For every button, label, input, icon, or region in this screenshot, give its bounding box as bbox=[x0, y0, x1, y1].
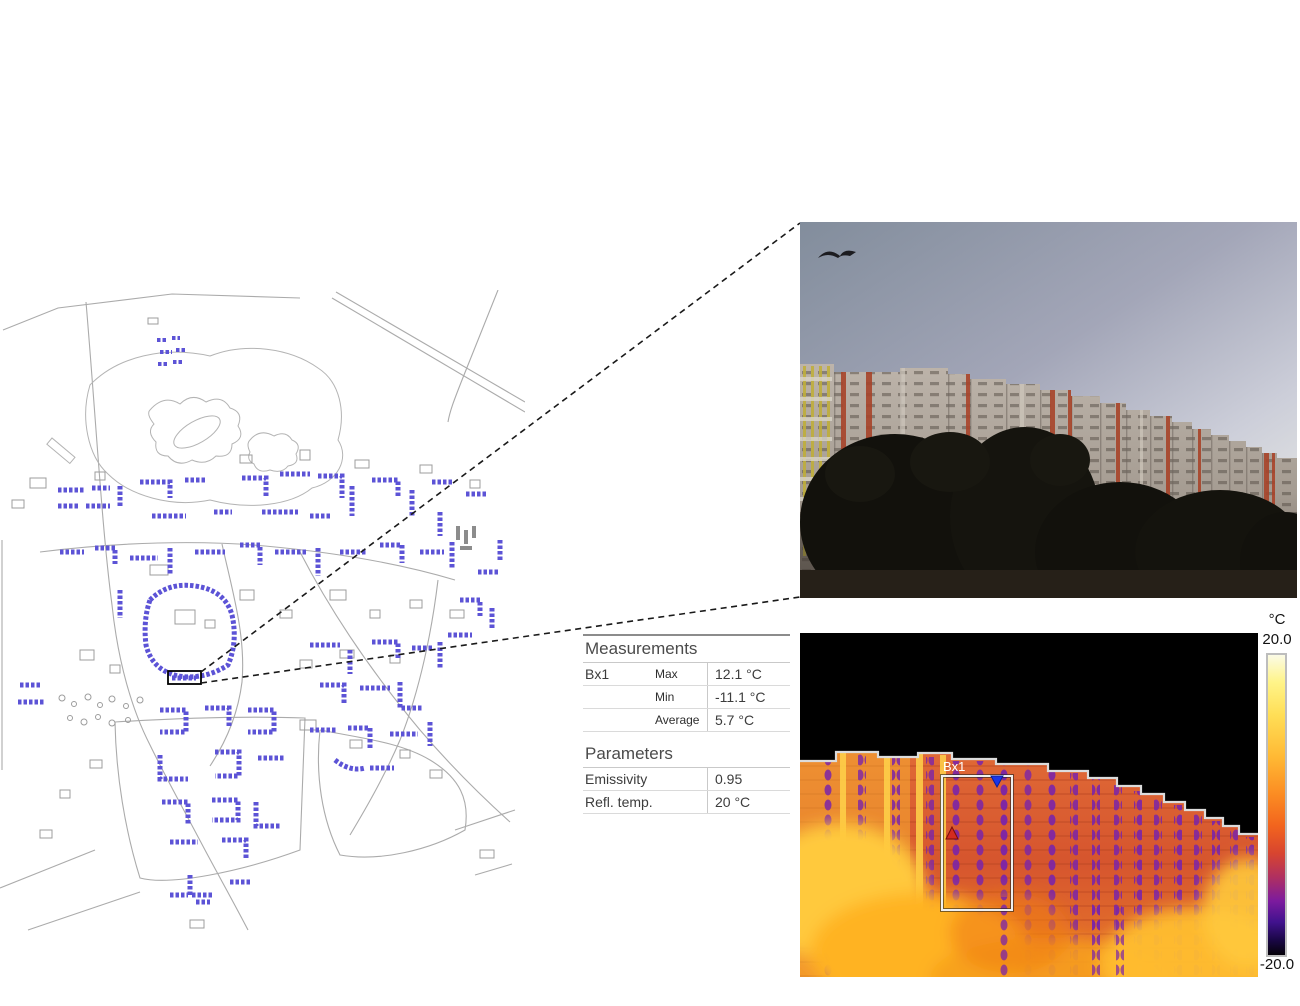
scale-unit-label: °C bbox=[1245, 611, 1300, 628]
temperature-colorbar bbox=[1266, 653, 1287, 957]
roi-name bbox=[583, 686, 655, 708]
stat-value: -11.1 °C bbox=[707, 686, 790, 708]
stat-name: Average bbox=[655, 709, 707, 731]
measurements-title: Measurements bbox=[583, 634, 790, 663]
map-buildings-highlighted bbox=[18, 338, 500, 902]
map-buildings-solid bbox=[456, 526, 476, 550]
parameters-title: Parameters bbox=[583, 741, 790, 768]
table-row: Emissivity 0.95 bbox=[583, 768, 790, 791]
table-row: Min -11.1 °C bbox=[583, 686, 790, 709]
roi-name bbox=[583, 709, 655, 731]
parameter-name: Emissivity bbox=[583, 768, 707, 790]
table-row: Average 5.7 °C bbox=[583, 709, 790, 732]
map-roads bbox=[0, 290, 525, 930]
parameter-value: 20 °C bbox=[707, 791, 790, 813]
stat-name: Min bbox=[655, 686, 707, 708]
table-row: Refl. temp. 20 °C bbox=[583, 791, 790, 814]
roi-label: Bx1 bbox=[943, 759, 965, 774]
photo-apartment-blocks bbox=[800, 222, 1297, 598]
city-map bbox=[0, 290, 525, 945]
thermal-image: Bx1 bbox=[800, 633, 1258, 977]
measurements-panel: Measurements Bx1 Max 12.1 °C Min -11.1 °… bbox=[583, 634, 790, 814]
scale-max-label: 20.0 bbox=[1245, 631, 1300, 648]
stat-value: 5.7 °C bbox=[707, 709, 790, 731]
stat-name: Max bbox=[655, 663, 707, 685]
scale-min-label: -20.0 bbox=[1245, 956, 1300, 973]
table-row: Bx1 Max 12.1 °C bbox=[583, 663, 790, 686]
figure-canvas: Bx1 °C 20.0 -20.0 Measurements Bx1 Max 1… bbox=[0, 0, 1300, 1006]
map-buildings-gray bbox=[12, 318, 494, 928]
roi-name: Bx1 bbox=[583, 663, 655, 685]
parameter-name: Refl. temp. bbox=[583, 791, 707, 813]
stat-value: 12.1 °C bbox=[707, 663, 790, 685]
parameter-value: 0.95 bbox=[707, 768, 790, 790]
